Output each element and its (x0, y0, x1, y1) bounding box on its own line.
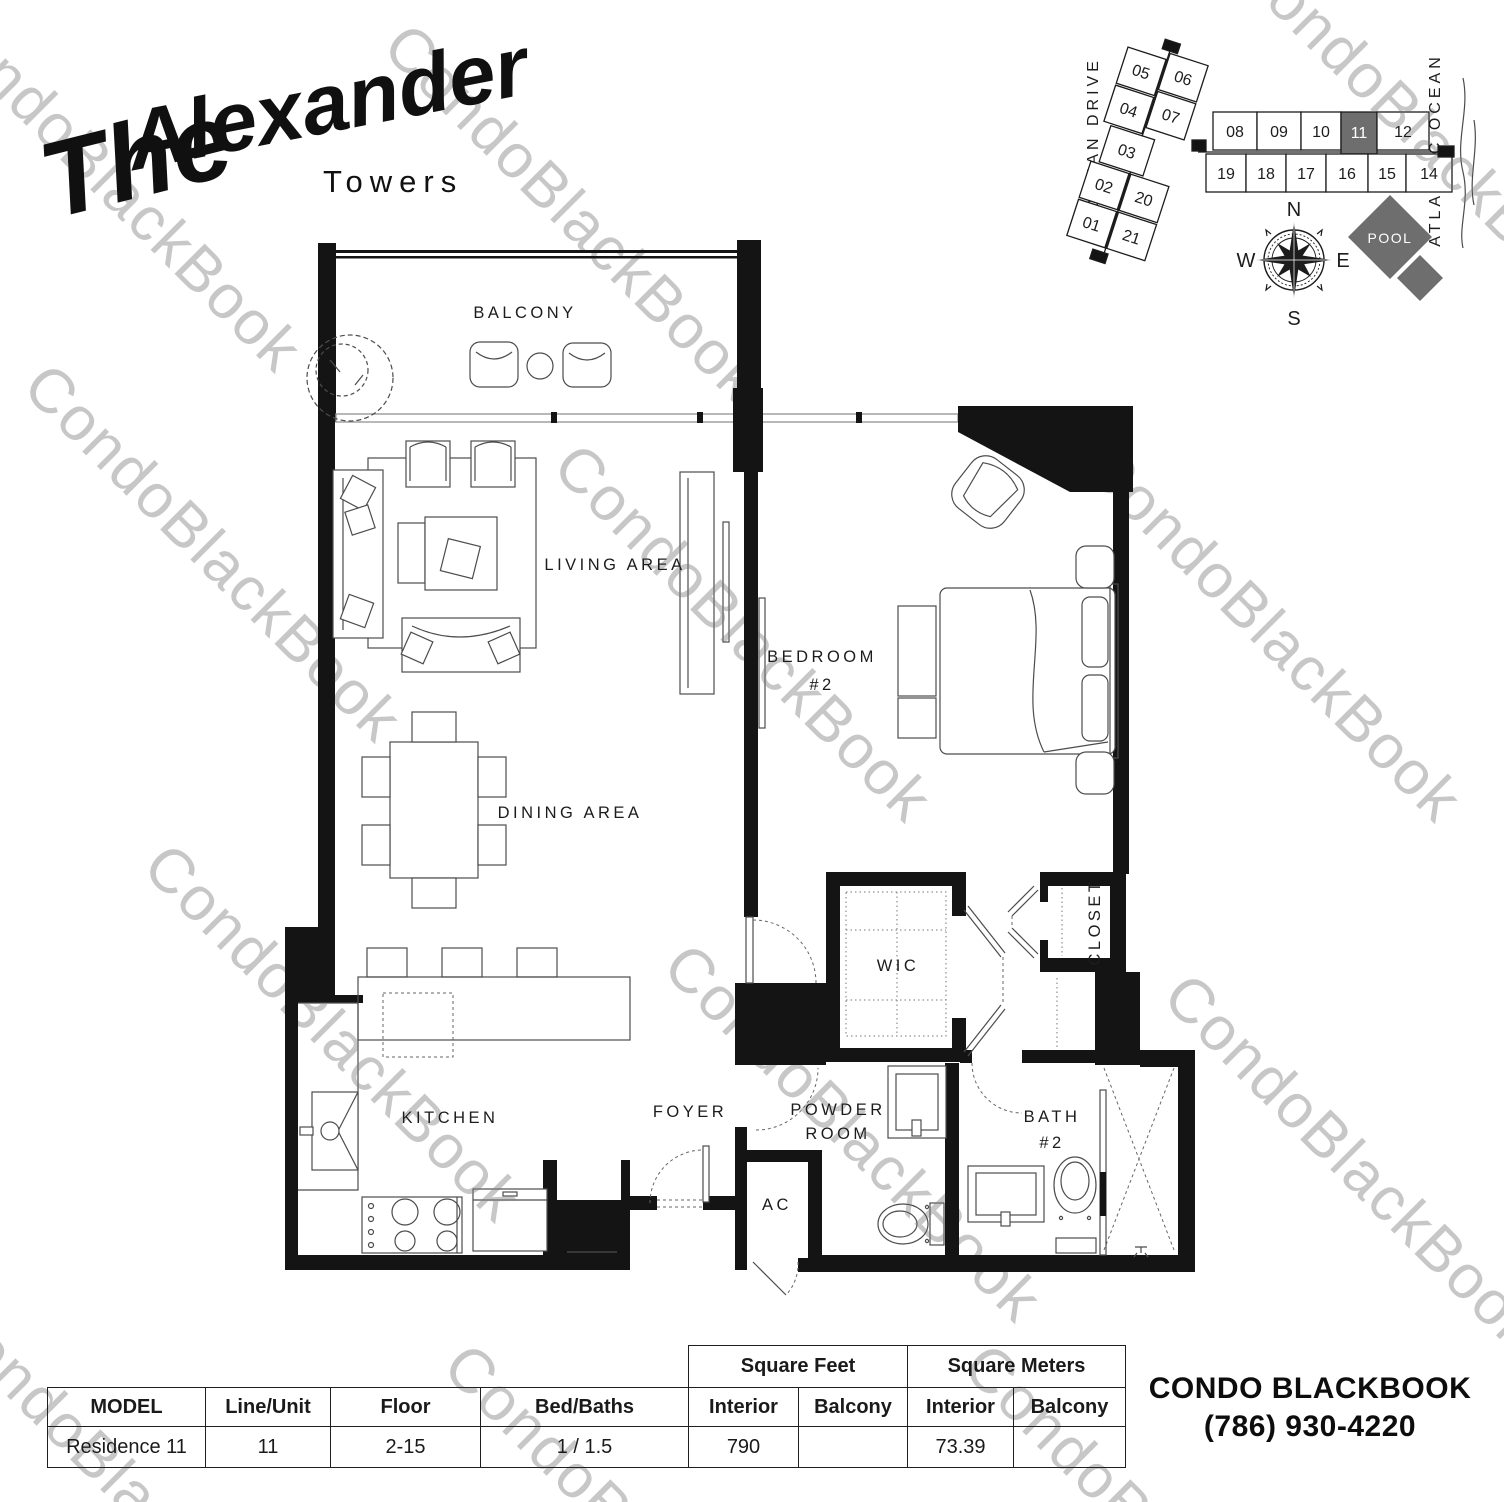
contact-phone: (786) 930-4220 (1128, 1408, 1492, 1446)
room-label-living: LIVING AREA (544, 556, 685, 574)
toilet (878, 1203, 944, 1245)
brand-logo: The Alexander Towers (28, 4, 548, 254)
summary-table: Square Feet Square Meters MODEL Line/Uni… (47, 1345, 1126, 1468)
group-header-square-meters: Square Meters (908, 1346, 1126, 1388)
room-label-wic: WIC (877, 957, 920, 975)
balcony-furniture (307, 335, 611, 421)
stove (362, 1197, 462, 1253)
unit-label: 19 (1217, 166, 1235, 183)
cell-sm-balcony (1014, 1427, 1126, 1468)
room-label-bedroom-2: #2 (809, 676, 834, 694)
dining-furniture (362, 712, 506, 908)
site-horizontal-wing: 08 09 10 11 12 19 18 17 16 15 14 (1192, 112, 1454, 192)
logo-towers-label: Towers (323, 164, 463, 199)
contact-block: CONDO BLACKBOOK (786) 930-4220 (1128, 1370, 1492, 1447)
col-header-model: MODEL (48, 1388, 206, 1427)
col-header-sf-interior: Interior (689, 1388, 799, 1427)
pool-label: POOL (1368, 230, 1413, 246)
col-header-line-unit: Line/Unit (206, 1388, 331, 1427)
bath2-fixtures (968, 1068, 1174, 1257)
room-label-ac: AC (762, 1196, 792, 1214)
floorplan-sheet: CondoBlackBook CondoBlackBook CondoBlack… (0, 0, 1504, 1502)
logo-script-alexander: Alexander (117, 17, 540, 188)
room-label-bath-2: #2 (1039, 1134, 1064, 1152)
unit-label: 10 (1312, 124, 1330, 141)
cell-sm-interior: 73.39 (908, 1427, 1014, 1468)
unit-label: 17 (1297, 166, 1315, 183)
oven (473, 1189, 547, 1251)
toilet (1054, 1157, 1096, 1253)
room-label-foyer: FOYER (653, 1103, 727, 1121)
room-label-bedroom-1: BEDROOM (767, 648, 877, 666)
compass-e-label: E (1336, 250, 1349, 272)
cell-floor: 2-15 (331, 1427, 481, 1468)
unit-label: 14 (1420, 166, 1438, 183)
group-header-square-feet: Square Feet (689, 1346, 908, 1388)
col-header-sm-balcony: Balcony (1014, 1388, 1126, 1427)
doors (650, 886, 1038, 1295)
shoreline (1472, 120, 1475, 205)
cell-bed-baths: 1 / 1.5 (481, 1427, 689, 1468)
refrigerator (383, 993, 453, 1057)
cell-model: Residence 11 (48, 1427, 206, 1468)
unit-label: 12 (1394, 124, 1412, 141)
col-header-sf-balcony: Balcony (799, 1388, 908, 1427)
unit-label: 16 (1338, 166, 1356, 183)
room-label-kitchen: KITCHEN (402, 1109, 499, 1127)
bedroom-furniture (759, 448, 1118, 794)
floor-plan: BALCONY LIVING AREA DINING AREA KITCHEN … (270, 235, 1205, 1320)
unit-label: 18 (1257, 166, 1275, 183)
compass-n-label: N (1287, 199, 1301, 221)
cell-line-unit: 11 (206, 1427, 331, 1468)
room-label-dining: DINING AREA (498, 804, 643, 822)
bed (940, 584, 1118, 758)
room-label-balcony: BALCONY (473, 304, 576, 322)
compass-s-label: S (1287, 308, 1300, 330)
cell-sf-interior: 790 (689, 1427, 799, 1468)
room-label-bath-1: BATH (1024, 1108, 1081, 1126)
cell-sf-balcony (799, 1427, 908, 1468)
shower (1100, 1068, 1174, 1257)
unit-label: 15 (1378, 166, 1396, 183)
compass-rose-icon: N S E W (1237, 199, 1350, 330)
room-label-powder-2: ROOM (805, 1125, 870, 1143)
table-row: Residence 11 11 2-15 1 / 1.5 790 73.39 (48, 1427, 1126, 1468)
compass-w-label: W (1237, 250, 1256, 272)
col-header-sm-interior: Interior (908, 1388, 1014, 1427)
room-label-powder-1: POWDER (790, 1101, 885, 1119)
powder-room-fixtures (878, 1066, 946, 1245)
unit-label-highlighted: 11 (1351, 125, 1368, 142)
unit-label: 09 (1270, 124, 1288, 141)
col-header-floor: Floor (331, 1388, 481, 1427)
shoreline (1461, 78, 1466, 248)
unit-label: 08 (1226, 124, 1244, 141)
room-label-closet: CLOSET (1086, 878, 1104, 965)
col-header-bed-baths: Bed/Baths (481, 1388, 689, 1427)
contact-brand: CONDO BLACKBOOK (1128, 1370, 1492, 1408)
